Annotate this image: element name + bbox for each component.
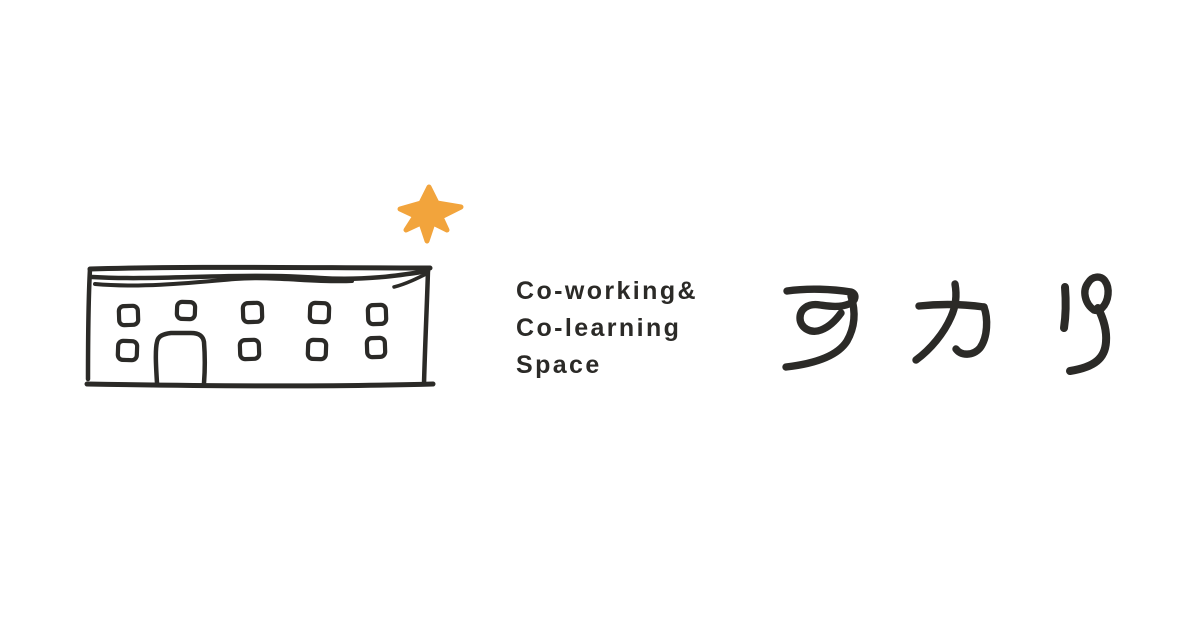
tagline-line-1: Co-working& (516, 273, 698, 310)
window (243, 303, 263, 323)
building-left-wall (88, 269, 90, 379)
window (119, 306, 139, 326)
star-icon (400, 187, 461, 241)
window (308, 340, 327, 360)
window (240, 340, 260, 360)
window (118, 341, 138, 361)
window (310, 303, 330, 323)
tagline-line-2: Co-learning (516, 310, 698, 347)
kana-ka (916, 284, 987, 360)
window (177, 302, 196, 320)
building-icon (87, 267, 433, 386)
kana-a (786, 289, 855, 367)
door (156, 333, 205, 383)
og-banner: Co-working& Co-learning Space (0, 0, 1200, 630)
brand-wordmark (786, 277, 1108, 371)
kana-ri (1064, 277, 1108, 371)
tagline-line-3: Space (516, 347, 698, 384)
building-floor-line (87, 384, 433, 386)
tagline: Co-working& Co-learning Space (516, 273, 698, 384)
building-right-wall (424, 270, 428, 384)
window (367, 338, 386, 358)
window (368, 305, 387, 325)
building-roof-top-line (90, 267, 430, 269)
